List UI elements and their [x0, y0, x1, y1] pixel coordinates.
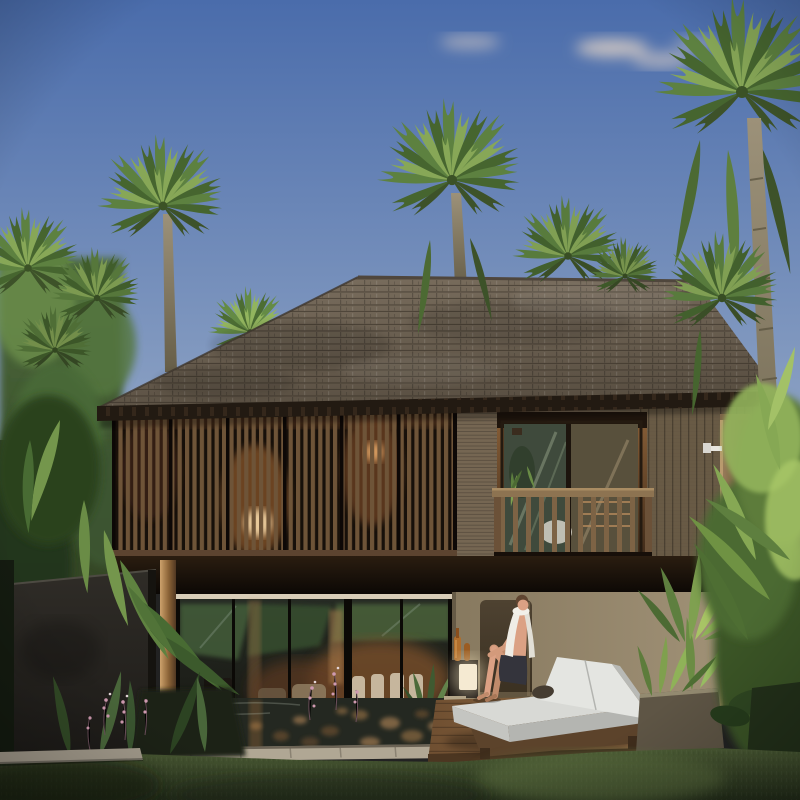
villa-exterior-rendering	[0, 0, 800, 800]
vignette	[0, 0, 800, 800]
